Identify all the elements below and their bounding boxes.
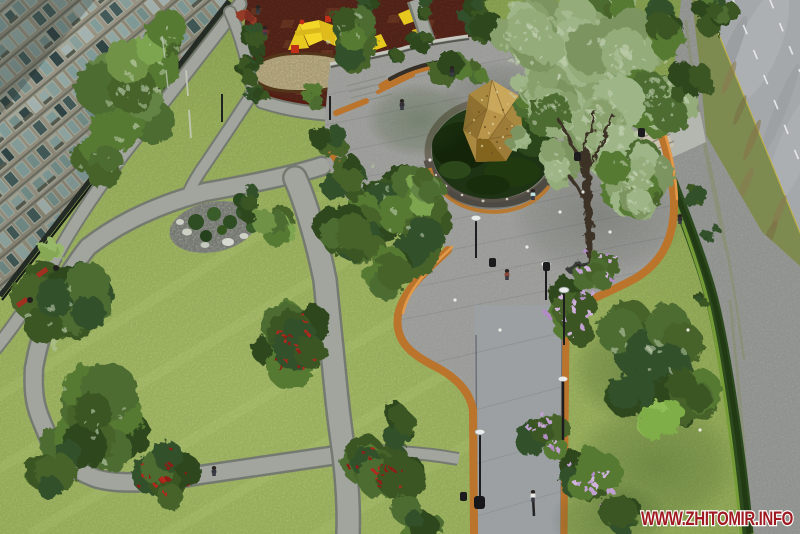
svg-text:WWW.ZHITOMIR.INFO: WWW.ZHITOMIR.INFO xyxy=(641,508,793,530)
